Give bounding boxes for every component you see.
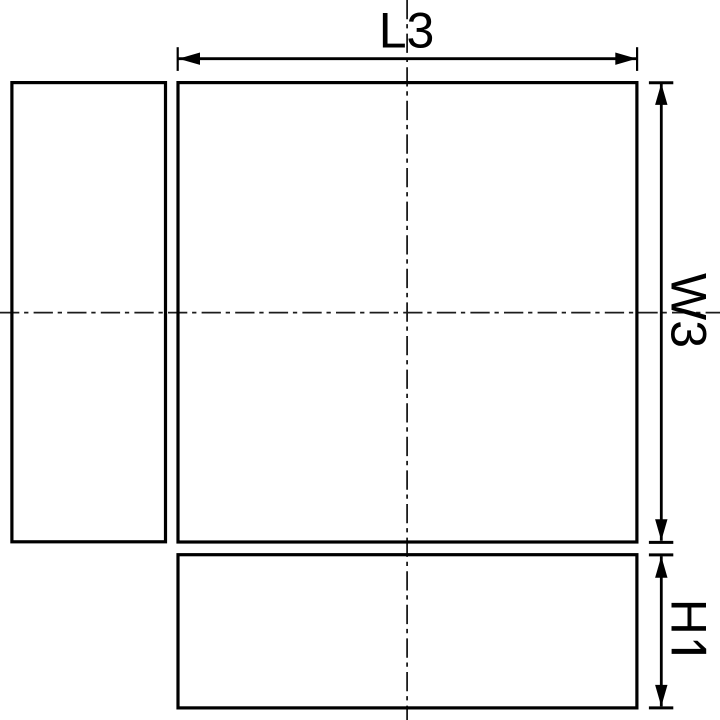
svg-text:H: H — [661, 599, 717, 635]
svg-text:L3: L3 — [379, 3, 435, 59]
svg-text:W3: W3 — [661, 273, 717, 348]
